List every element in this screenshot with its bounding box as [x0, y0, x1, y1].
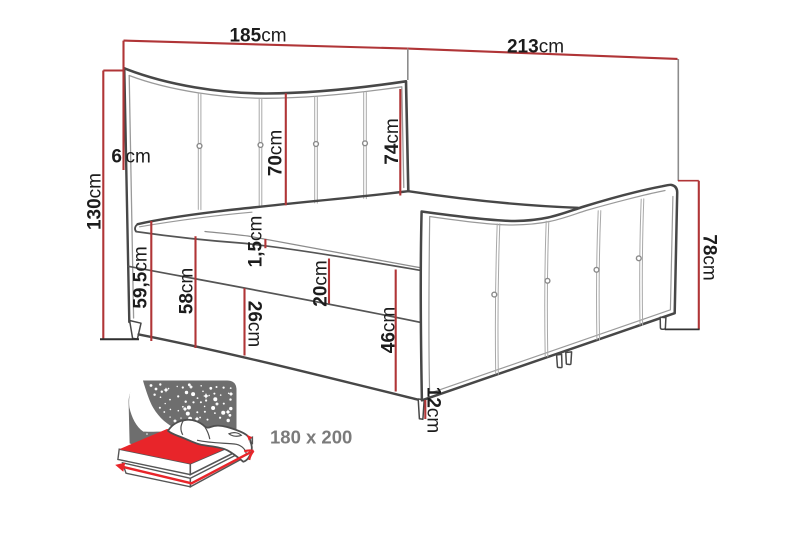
svg-text:130cm: 130cm [85, 173, 106, 230]
svg-text:185cm: 185cm [229, 26, 286, 47]
svg-text:213cm: 213cm [507, 37, 564, 58]
svg-text:78cm: 78cm [698, 234, 719, 280]
svg-text:6: 6 [111, 147, 122, 168]
svg-text:12cm: 12cm [422, 387, 443, 433]
svg-text:70cm: 70cm [266, 130, 287, 176]
svg-text:1,5cm: 1,5cm [246, 216, 267, 268]
svg-text:20cm: 20cm [311, 260, 332, 306]
svg-text:cm: cm [126, 147, 151, 168]
svg-text:180 x 200: 180 x 200 [270, 427, 352, 448]
svg-text:74cm: 74cm [382, 118, 403, 164]
svg-text:59,5cm: 59,5cm [131, 246, 152, 308]
svg-text:26cm: 26cm [243, 301, 264, 347]
svg-text:58cm: 58cm [177, 268, 198, 314]
svg-text:46cm: 46cm [379, 307, 400, 353]
